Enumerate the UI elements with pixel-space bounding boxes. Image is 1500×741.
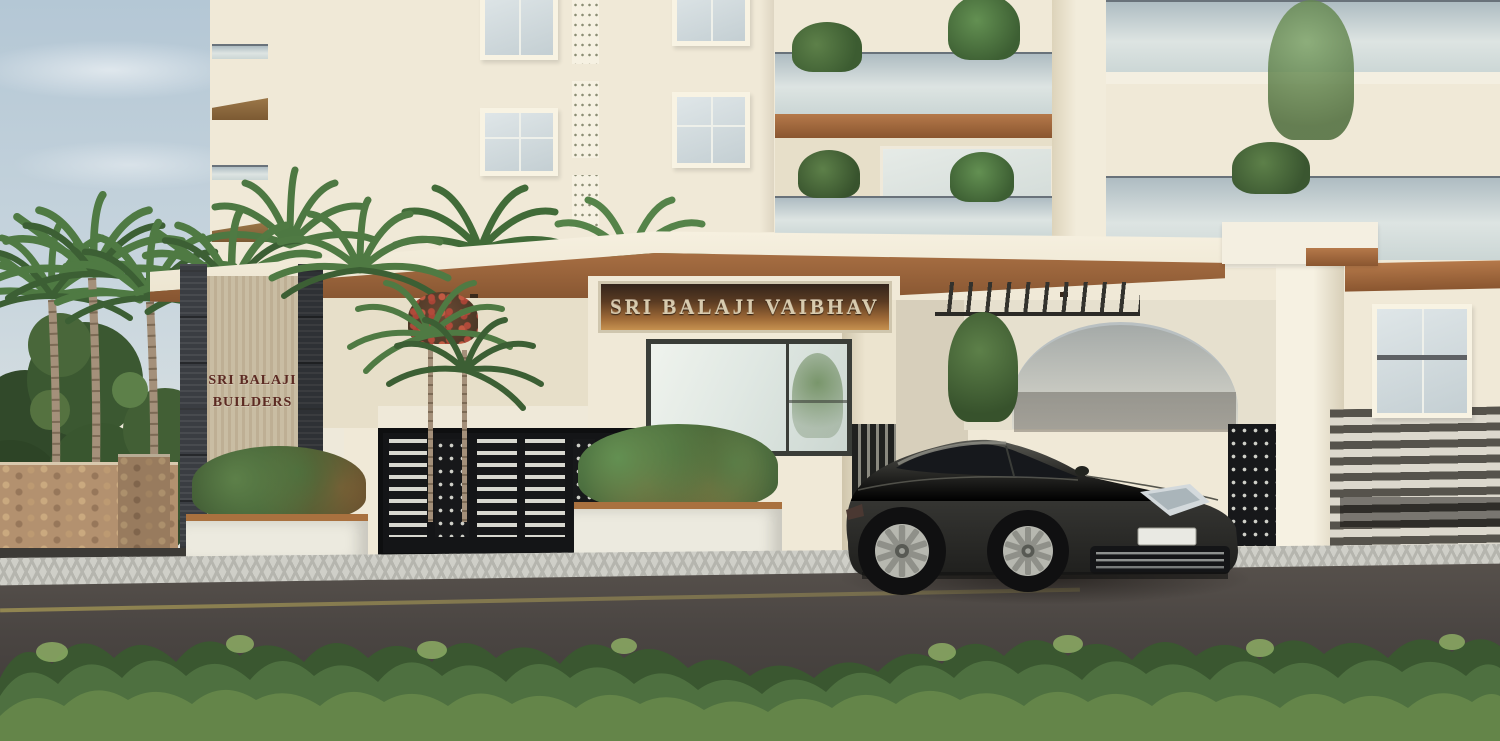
gate-slat-panel (525, 439, 565, 537)
balcony-plant (1268, 0, 1354, 140)
jali-gap (572, 64, 599, 81)
balcony-plant (792, 22, 862, 72)
pergola-beams (935, 282, 1140, 316)
window-plant-reflection (792, 353, 843, 439)
window (672, 0, 750, 46)
window-rail-reflection (788, 400, 847, 403)
horizontal-slat-fence (1330, 407, 1500, 550)
window (480, 0, 558, 60)
builder-sign-line1: SRI BALAJI (207, 370, 298, 392)
planter-plants (192, 446, 366, 520)
project-sign-text: SRI BALAJI VAIBHAV (610, 295, 880, 320)
project-sign-board: SRI BALAJI VAIBHAV (598, 281, 892, 333)
porch-plant (948, 312, 1018, 422)
car-front-wheel (987, 510, 1069, 592)
side-balcony-railing (212, 44, 268, 59)
window-corner-mullion (786, 344, 789, 451)
balcony-wood-soffit (775, 114, 1052, 138)
porch-slab-wood-edge (1306, 248, 1378, 266)
hedge (0, 600, 1500, 741)
fence-shadow-band (1340, 497, 1500, 527)
ground-window (1372, 304, 1472, 418)
balcony-plant (798, 150, 860, 198)
architectural-render-scene: SRI BALAJI BUILDERS SRI BALAJI VAIBHAV (0, 0, 1500, 741)
balcony-plant (950, 152, 1014, 202)
builder-sign-line2: BUILDERS (207, 392, 298, 414)
gate-slat-panel (477, 439, 517, 537)
planter-plants (578, 424, 778, 508)
car-rear-wheel (858, 507, 946, 595)
car-luxury-sedan (838, 424, 1242, 600)
balcony-plant (1232, 142, 1310, 194)
window-rail-reflection (1377, 355, 1467, 360)
builder-sign-text: SRI BALAJI BUILDERS (207, 370, 298, 414)
gate-palm-heads (360, 280, 560, 440)
car-mirror (1075, 466, 1089, 476)
balcony-plant (948, 0, 1020, 60)
stone-wall-pillar (118, 454, 170, 557)
gate-slat-panel (389, 439, 427, 537)
car-license-plate (1138, 528, 1196, 545)
facade-column (1052, 0, 1106, 236)
